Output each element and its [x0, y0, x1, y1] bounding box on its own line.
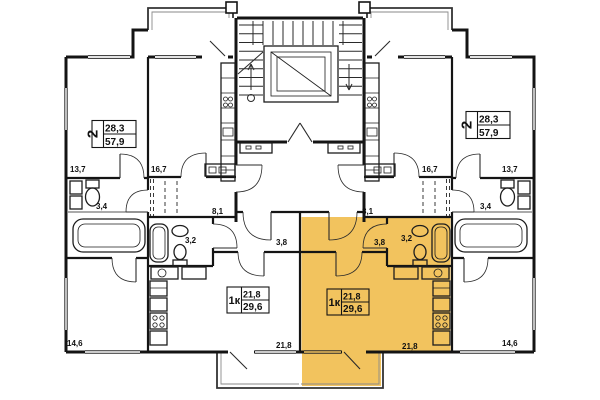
- bath-cabinet: [70, 181, 82, 194]
- floor-plan-page: 13,7 16,7 16,7 13,7 3,4 3,4 8,1 8,1 3,2 …: [0, 0, 600, 400]
- apartment-total-area: 29,6: [343, 304, 363, 315]
- kitchen-units: [221, 63, 235, 181]
- apartment-total-area: 29,6: [243, 302, 263, 313]
- lobby-cabinet-right: [328, 143, 360, 153]
- interior-walls: [66, 57, 534, 352]
- sink: [172, 226, 188, 237]
- toilet: [174, 245, 186, 260]
- fixtures-two-room-left: [68, 63, 235, 252]
- fixtures-one-room-left: [150, 224, 206, 345]
- apartment-tag-one-room-left[interactable]: 1к 21,8 29,6: [227, 287, 269, 313]
- counter: [182, 267, 206, 279]
- room-area-label: 8,1: [212, 207, 224, 216]
- apartment-tag-two-room-right[interactable]: 2 28,3 57,9: [459, 112, 511, 140]
- vent-pillar: [226, 2, 237, 13]
- fridge: [150, 281, 167, 296]
- toilet: [86, 180, 99, 188]
- apartment-total-area: 57,9: [479, 128, 499, 139]
- room-area-label: 3,2: [185, 236, 197, 245]
- kitchen-sink: [223, 128, 233, 136]
- washer: [151, 267, 178, 279]
- apartment-living-area: 28,3: [105, 124, 125, 135]
- apartment-living-area: 28,3: [479, 115, 499, 126]
- apartment-tag-two-room-left[interactable]: 2 28,3 57,9: [85, 121, 137, 149]
- room-area-label: 14,6: [502, 339, 518, 348]
- bath-cabinet: [518, 181, 530, 194]
- toilet: [501, 180, 514, 188]
- room-area-label: 3,2: [401, 234, 413, 243]
- kitchen-sink: [367, 128, 377, 136]
- room-area-label: 16,7: [151, 165, 167, 174]
- apartment-type: 1к: [329, 297, 341, 309]
- room-area-label: 8,1: [362, 207, 374, 216]
- room-area-label: 21,8: [276, 341, 292, 350]
- room-area-label: 3,8: [276, 238, 288, 247]
- room-area-label: 3,4: [96, 202, 108, 211]
- bath-cabinet: [70, 196, 82, 209]
- staircase-core: [238, 21, 362, 153]
- apartment-type: 1к: [229, 295, 241, 307]
- room-area-label: 3,8: [374, 238, 386, 247]
- highlight-balcony-area[interactable]: [302, 353, 381, 386]
- entrance-door: [288, 123, 312, 142]
- room-area-label: 3,4: [480, 202, 492, 211]
- apartment-type: 2: [459, 121, 476, 129]
- floor-plan: 13,7 16,7 16,7 13,7 3,4 3,4 8,1 8,1 3,2 …: [0, 0, 600, 400]
- room-area-label: 13,7: [70, 165, 86, 174]
- stove: [150, 313, 167, 329]
- bath-cabinet: [518, 196, 530, 209]
- room-area-label: 14,6: [67, 339, 83, 348]
- apartment-living-area: 21,8: [343, 292, 361, 302]
- room-area-label: 16,7: [422, 165, 438, 174]
- apartment-living-area: 21,8: [243, 290, 261, 300]
- apartment-total-area: 57,9: [105, 137, 125, 148]
- vent-pillar: [359, 2, 370, 13]
- room-area-label: 21,8: [402, 342, 418, 351]
- room-area-label: 13,7: [502, 165, 518, 174]
- apartment-type: 2: [85, 130, 102, 138]
- kitchen-units: [365, 63, 379, 181]
- dashed-boundaries: [151, 179, 450, 216]
